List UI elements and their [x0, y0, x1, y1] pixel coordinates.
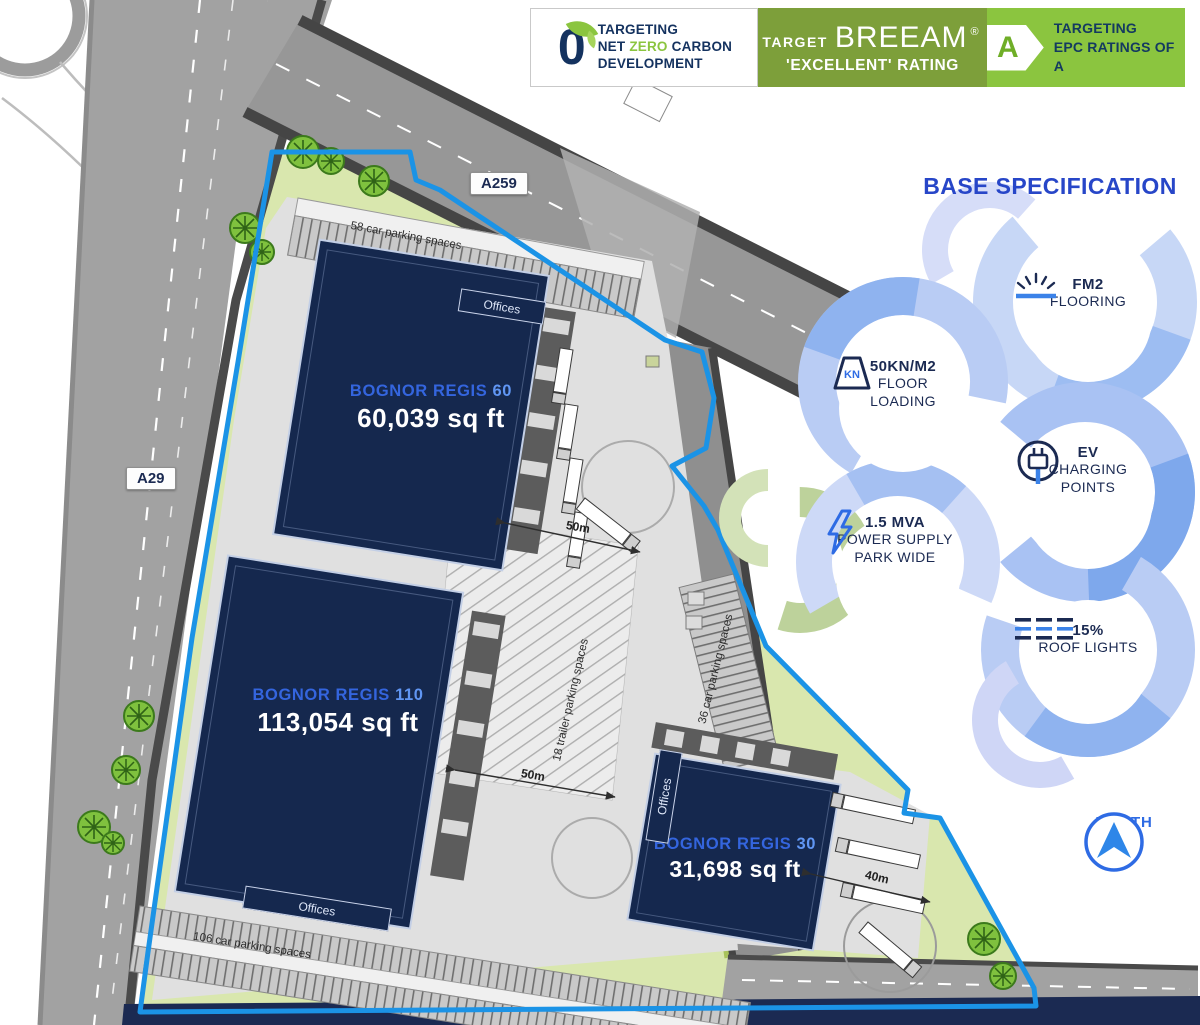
- site-plan-page: 0 TARGETING NET ZERO CARBON DEVELOPMENT …: [0, 0, 1200, 1025]
- net-zero-text: TARGETING NET ZERO CARBON DEVELOPMENT: [598, 22, 732, 73]
- spec-item-fm2-flooring: FM2 FLOORING: [1013, 270, 1163, 311]
- road-label-a29: A29: [126, 467, 176, 490]
- spec-panel-title: BASE SPECIFICATION: [908, 173, 1192, 200]
- road-label-a259: A259: [470, 172, 528, 195]
- net-zero-logo-icon: 0: [556, 25, 586, 70]
- north-arrow-icon: [1082, 810, 1146, 874]
- ev-plug-icon: [1013, 438, 1063, 490]
- epc-text: TARGETING EPC RATINGS OF A: [1054, 19, 1185, 76]
- roof-lights-icon: [1013, 616, 1075, 644]
- svg-text:KN: KN: [844, 369, 860, 381]
- spec-item-ev-charging: EV CHARGING POINTS: [1013, 438, 1163, 496]
- building-110-label: BOGNOR REGIS 110 113,054 sq ft: [208, 686, 468, 738]
- certification-banner: 0 TARGETING NET ZERO CARBON DEVELOPMENT …: [530, 8, 1185, 87]
- site-plan-graphic: [0, 0, 1200, 1025]
- spec-item-floor-loading: KN 50KN/M2 FLOOR LOADING: [828, 352, 978, 410]
- floor-shine-icon: [1013, 270, 1059, 304]
- building-60-label: BOGNOR REGIS 60 60,039 sq ft: [301, 382, 561, 434]
- epc-badge: A TARGETING EPC RATINGS OF A: [987, 8, 1185, 87]
- spec-item-power-supply: 1.5 MVA POWER SUPPLY PARK WIDE: [820, 508, 970, 566]
- spec-item-roof-lights: 15% ROOF LIGHTS: [1013, 616, 1163, 657]
- breeam-badge: TARGET BREEAM ® 'EXCELLENT' RATING: [758, 8, 987, 87]
- building-30-label: BOGNOR REGIS 30 31,698 sq ft: [615, 835, 855, 883]
- net-zero-badge: 0 TARGETING NET ZERO CARBON DEVELOPMENT: [530, 8, 758, 87]
- north-indicator: NORTH: [1082, 810, 1166, 831]
- lightning-icon: [820, 508, 860, 556]
- epc-a-rating-icon: A: [987, 25, 1044, 71]
- weight-icon: KN: [828, 352, 876, 394]
